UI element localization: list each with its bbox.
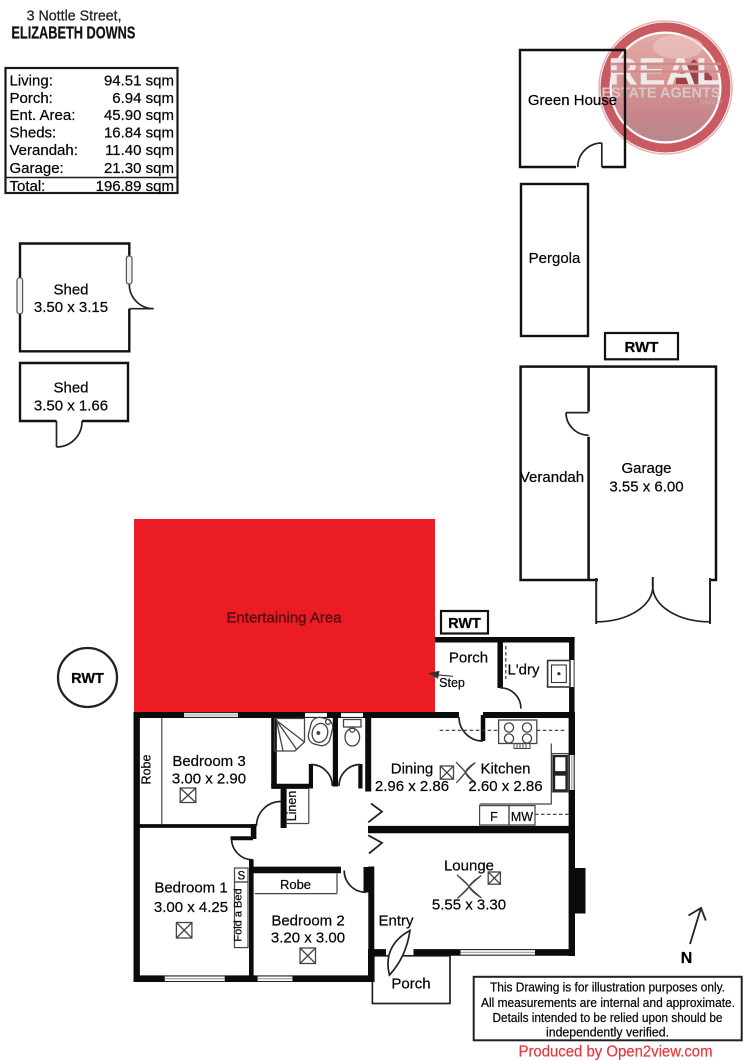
svg-text:Step: Step bbox=[439, 676, 465, 690]
svg-text:Robe: Robe bbox=[280, 877, 311, 892]
svg-text:16.84 sqm: 16.84 sqm bbox=[104, 125, 174, 142]
svg-text:Robe: Robe bbox=[140, 755, 154, 785]
svg-text:3.50 x 1.66: 3.50 x 1.66 bbox=[34, 398, 108, 415]
svg-text:Bedroom 1: Bedroom 1 bbox=[154, 880, 227, 897]
svg-text:2.96 x 2.86: 2.96 x 2.86 bbox=[375, 778, 449, 795]
svg-text:Total:: Total: bbox=[10, 178, 46, 195]
svg-text:Linen: Linen bbox=[285, 791, 299, 822]
svg-text:3.50 x 3.15: 3.50 x 3.15 bbox=[34, 299, 108, 316]
svg-text:Details intended to be relied: Details intended to be relied upon shoul… bbox=[493, 1011, 723, 1025]
svg-text:ESTATE AGENTS: ESTATE AGENTS bbox=[602, 85, 721, 102]
svg-text:3.00 x 2.90: 3.00 x 2.90 bbox=[172, 771, 246, 788]
svg-text:Garage: Garage bbox=[621, 460, 671, 477]
svg-text:Ent. Area:: Ent. Area: bbox=[10, 107, 76, 124]
svg-text:Verandah:: Verandah: bbox=[10, 142, 78, 159]
svg-text:Green House: Green House bbox=[528, 92, 617, 109]
svg-text:Garage:: Garage: bbox=[10, 160, 64, 177]
svg-text:45.90 sqm: 45.90 sqm bbox=[104, 107, 174, 124]
svg-text:Living:: Living: bbox=[10, 73, 53, 90]
svg-text:Shed: Shed bbox=[53, 380, 88, 397]
svg-text:3.55 x 6.00: 3.55 x 6.00 bbox=[609, 479, 683, 496]
svg-text:Pergola: Pergola bbox=[529, 250, 581, 267]
svg-text:3.20 x 3.00: 3.20 x 3.00 bbox=[271, 930, 345, 947]
svg-text:Bedroom 2: Bedroom 2 bbox=[271, 913, 344, 930]
svg-text:Entry: Entry bbox=[378, 913, 414, 930]
svg-text:Entertaining Area: Entertaining Area bbox=[226, 610, 342, 627]
svg-text:2.60 x 2.86: 2.60 x 2.86 bbox=[468, 778, 542, 795]
svg-text:94.51 sqm: 94.51 sqm bbox=[104, 73, 174, 90]
svg-text:Porch:: Porch: bbox=[10, 90, 53, 107]
svg-text:Dining: Dining bbox=[391, 761, 434, 778]
svg-text:21.30 sqm: 21.30 sqm bbox=[104, 160, 174, 177]
svg-text:MW: MW bbox=[511, 810, 533, 824]
svg-text:Lounge: Lounge bbox=[444, 858, 494, 875]
svg-text:Sheds:: Sheds: bbox=[10, 125, 57, 142]
svg-text:Porch: Porch bbox=[391, 976, 430, 993]
svg-text:ELIZABETH DOWNS: ELIZABETH DOWNS bbox=[11, 23, 135, 43]
svg-text:RWT: RWT bbox=[71, 671, 104, 687]
svg-text:F: F bbox=[490, 810, 498, 824]
svg-text:N: N bbox=[681, 950, 693, 967]
svg-text:This Drawing is for illustrati: This Drawing is for illustration purpose… bbox=[490, 981, 725, 995]
svg-text:L'dry: L'dry bbox=[507, 662, 540, 679]
svg-text:Shed: Shed bbox=[53, 282, 88, 299]
svg-text:RWT: RWT bbox=[625, 339, 659, 356]
svg-text:Produced by Open2view.com: Produced by Open2view.com bbox=[519, 1044, 713, 1060]
svg-text:196.89 sqm: 196.89 sqm bbox=[96, 178, 174, 195]
svg-text:GROUP: GROUP bbox=[700, 101, 722, 107]
svg-text:Porch: Porch bbox=[449, 650, 488, 667]
svg-text:S: S bbox=[237, 871, 245, 883]
svg-text:11.40 sqm: 11.40 sqm bbox=[105, 142, 174, 159]
svg-text:3.00 x 4.25: 3.00 x 4.25 bbox=[154, 899, 228, 916]
svg-text:independently verified.: independently verified. bbox=[546, 1026, 669, 1040]
svg-text:5.55 x 3.30: 5.55 x 3.30 bbox=[432, 897, 506, 914]
svg-text:All measurements are internal: All measurements are internal and approx… bbox=[481, 996, 735, 1010]
svg-text:RWT: RWT bbox=[448, 616, 481, 632]
svg-text:Kitchen: Kitchen bbox=[480, 761, 530, 778]
svg-text:Verandah: Verandah bbox=[520, 469, 584, 486]
svg-text:Fold a Bed: Fold a Bed bbox=[232, 888, 244, 941]
svg-text:6.94 sqm: 6.94 sqm bbox=[112, 90, 174, 107]
svg-text:Bedroom 3: Bedroom 3 bbox=[172, 753, 245, 770]
